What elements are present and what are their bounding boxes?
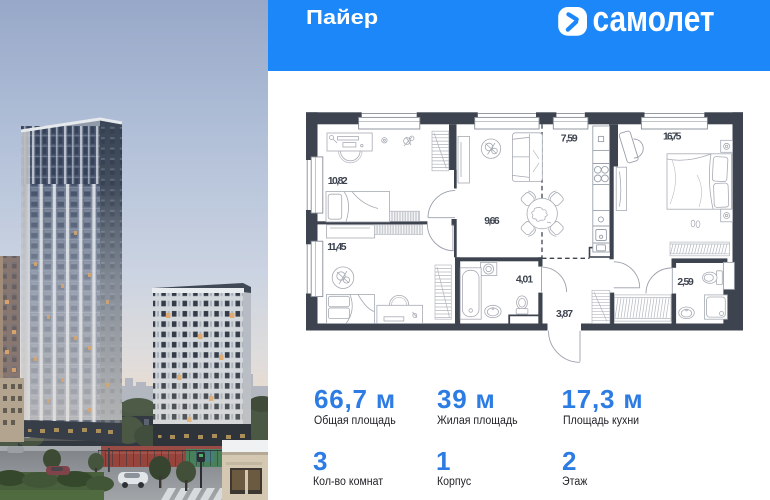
- svg-text:7,59: 7,59: [561, 134, 578, 145]
- svg-text:4,01: 4,01: [516, 275, 533, 286]
- svg-text:16,75: 16,75: [663, 132, 682, 143]
- svg-text:10,82: 10,82: [328, 176, 348, 187]
- svg-text:2,59: 2,59: [677, 277, 694, 288]
- svg-text:9,66: 9,66: [484, 216, 500, 227]
- svg-text:3,87: 3,87: [556, 309, 573, 320]
- svg-text:самолет: самолет: [593, 0, 715, 39]
- svg-text:11,45: 11,45: [327, 242, 347, 253]
